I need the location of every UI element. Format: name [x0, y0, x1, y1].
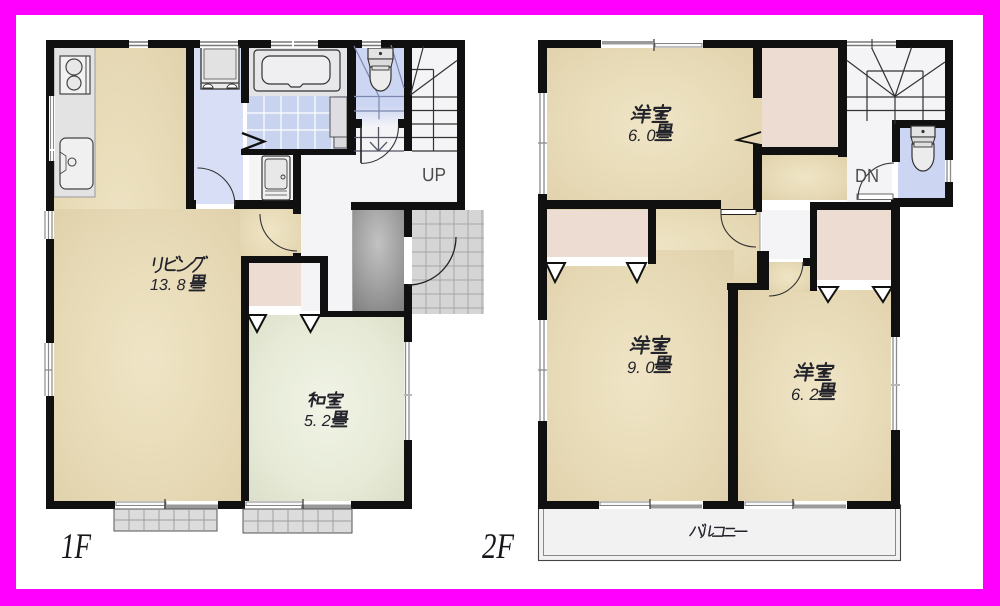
- svg-text:9. 0: 9. 0: [627, 359, 655, 377]
- svg-text:6. 0: 6. 0: [628, 127, 656, 145]
- svg-text:6. 2: 6. 2: [791, 386, 819, 404]
- svg-text:13. 8: 13. 8: [150, 277, 186, 294]
- svg-text:5. 2: 5. 2: [304, 413, 331, 430]
- svg-text:UP: UP: [422, 165, 446, 186]
- svg-text:DN: DN: [855, 166, 879, 187]
- svg-text:1F: 1F: [61, 526, 92, 566]
- svg-text:2F: 2F: [482, 526, 515, 566]
